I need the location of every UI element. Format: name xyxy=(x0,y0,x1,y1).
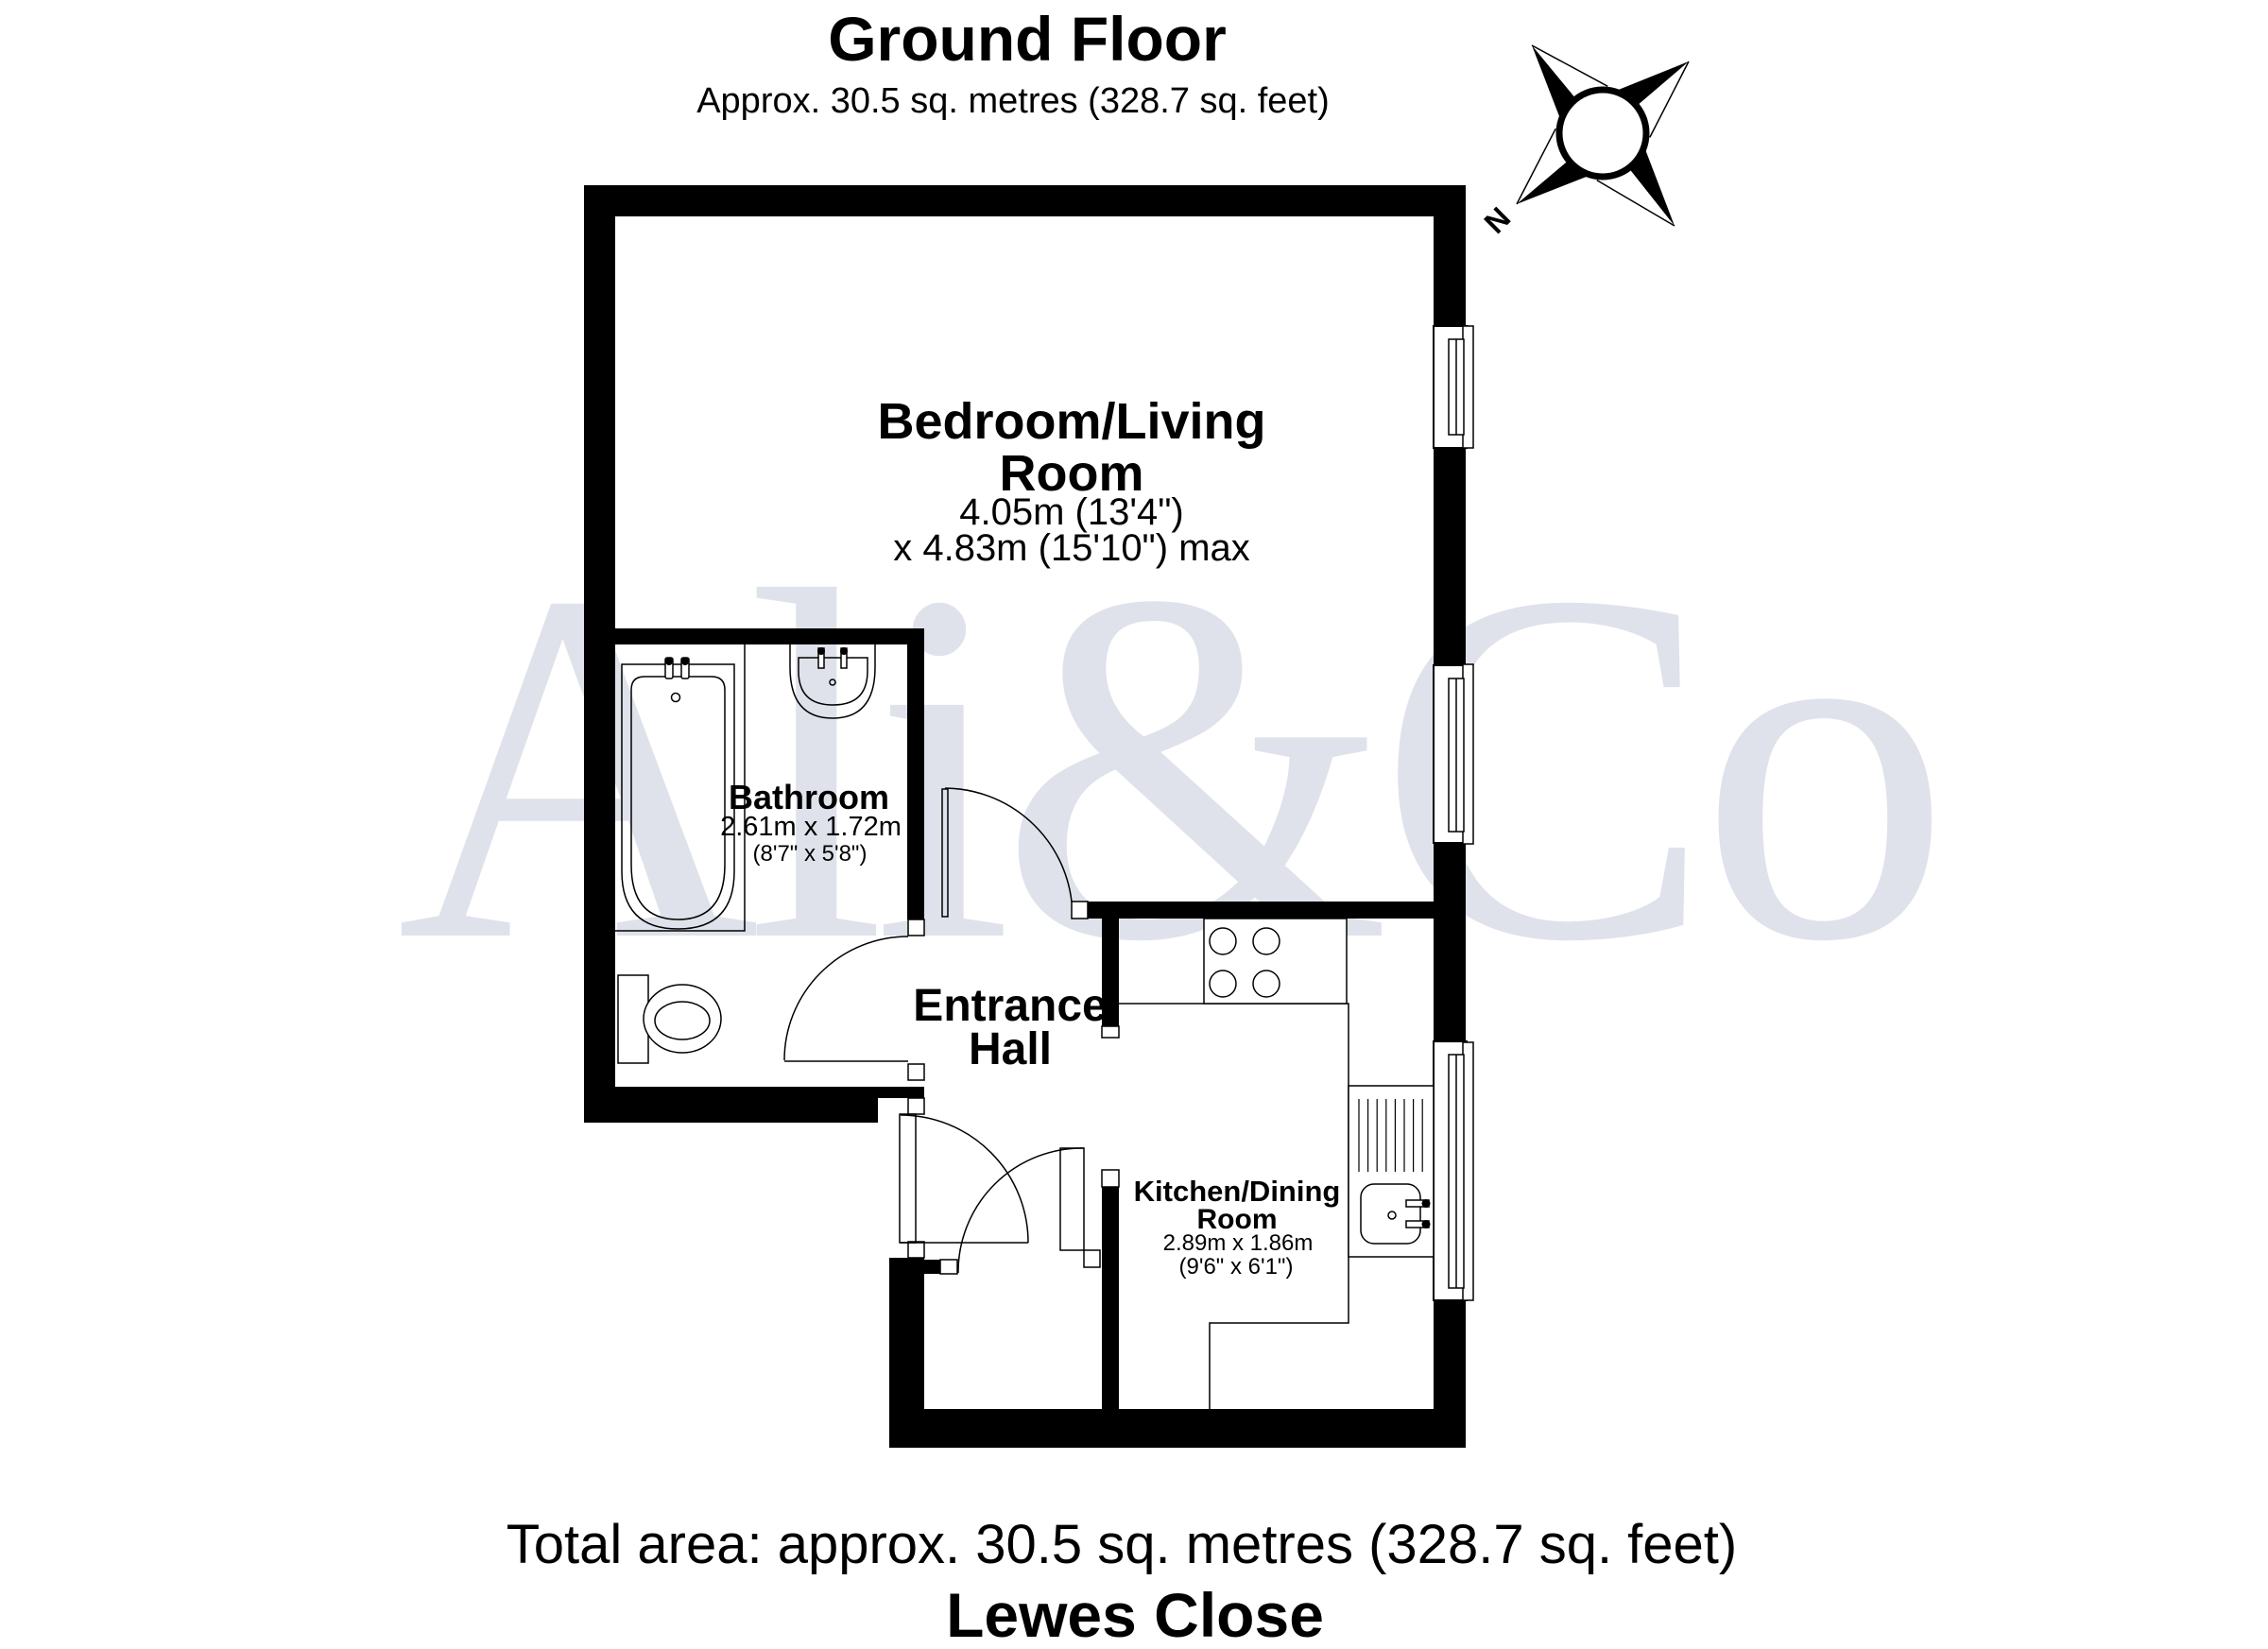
svg-text:2.61m x 1.72m: 2.61m x 1.72m xyxy=(720,812,902,842)
svg-text:Hall: Hall xyxy=(969,1024,1052,1074)
svg-text:2.89m x 1.86m: 2.89m x 1.86m xyxy=(1163,1230,1314,1256)
svg-text:Lewes Close: Lewes Close xyxy=(946,1580,1324,1649)
svg-text:Ali&Co: Ali&Co xyxy=(397,489,1937,1045)
svg-text:Bathroom: Bathroom xyxy=(729,778,889,816)
svg-text:(9'6" x 6'1"): (9'6" x 6'1") xyxy=(1179,1254,1294,1280)
svg-text:Kitchen/Dining: Kitchen/Dining xyxy=(1134,1175,1341,1208)
svg-text:Ground Floor: Ground Floor xyxy=(828,4,1227,74)
svg-text:x 4.83m (15'10") max: x 4.83m (15'10") max xyxy=(893,527,1250,569)
svg-text:(8'7" x 5'8"): (8'7" x 5'8") xyxy=(753,841,868,867)
svg-text:Approx. 30.5 sq. metres (328.7: Approx. 30.5 sq. metres (328.7 sq. feet) xyxy=(696,81,1330,121)
svg-text:Total area: approx. 30.5 sq. m: Total area: approx. 30.5 sq. metres (328… xyxy=(507,1514,1737,1575)
svg-text:Bedroom/Living: Bedroom/Living xyxy=(877,393,1265,450)
